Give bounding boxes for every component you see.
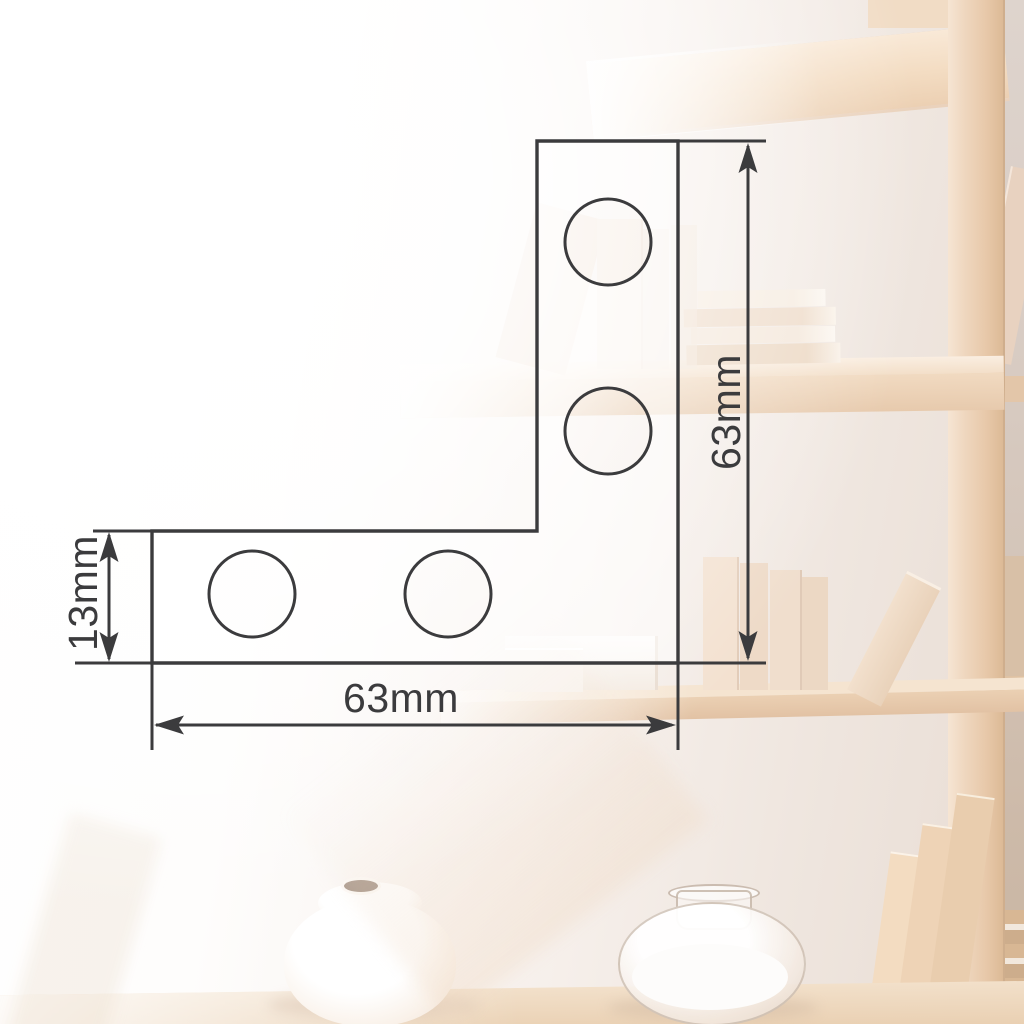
dim-label-63mm-vertical: 63mm [703, 354, 749, 470]
dimension-diagram: 13mm 63mm 63mm [0, 0, 1024, 1024]
bracket-hole-middle [565, 388, 651, 474]
dim-label-13mm: 13mm [60, 535, 106, 651]
bracket-hole-left [209, 551, 295, 637]
dim-label-63mm-horizontal: 63mm [343, 675, 459, 721]
bracket-plate-fill [152, 141, 678, 663]
bracket-hole-right [405, 551, 491, 637]
bracket-hole-top [565, 199, 651, 285]
screenshot-root: 13mm 63mm 63mm [0, 0, 1024, 1024]
